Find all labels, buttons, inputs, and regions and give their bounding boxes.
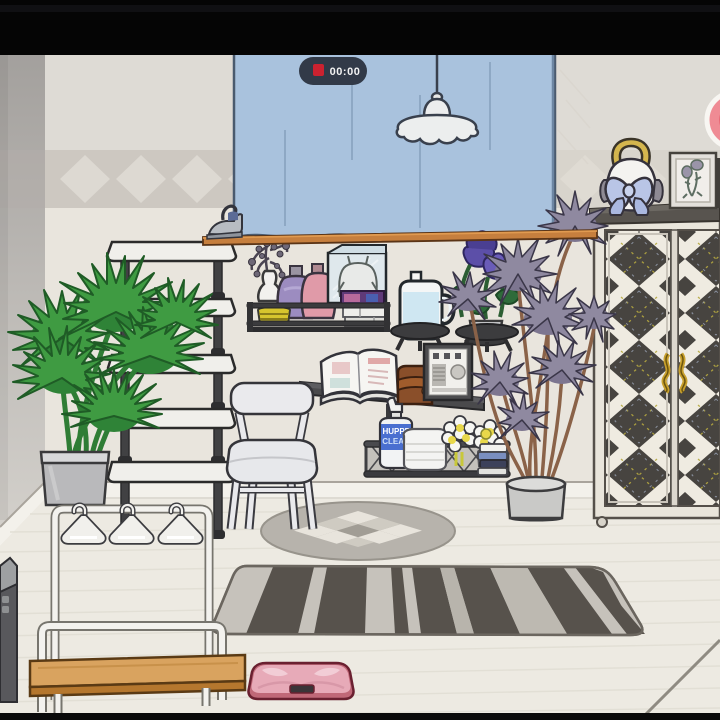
svg-text:00:00: 00:00 (330, 66, 361, 78)
